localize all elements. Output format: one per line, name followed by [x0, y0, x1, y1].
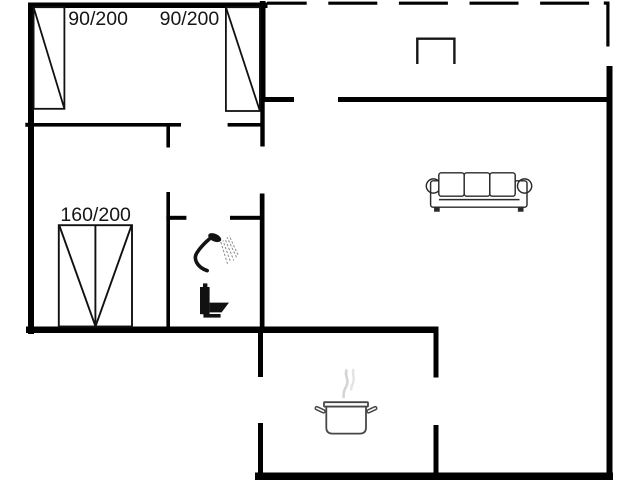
- svg-text:90/200: 90/200: [160, 8, 220, 30]
- svg-text:160/200: 160/200: [60, 204, 131, 226]
- svg-text:90/200: 90/200: [68, 8, 128, 30]
